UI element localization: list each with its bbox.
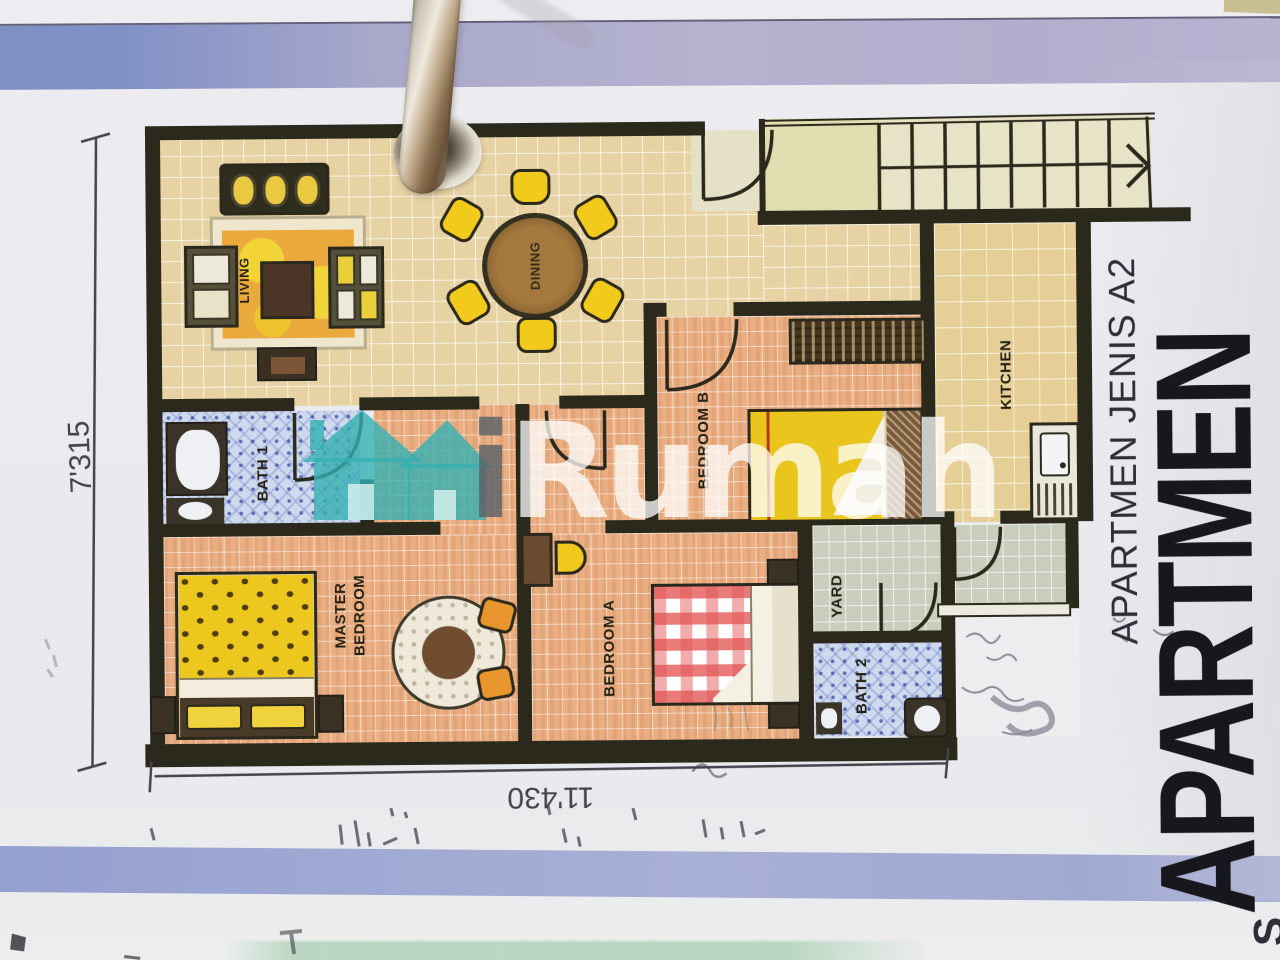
ink-smudges (45, 633, 766, 959)
irumah-watermark: i Rumah (468, 392, 999, 552)
watermark-i: i (468, 392, 508, 552)
yard-label: YARD (828, 575, 845, 618)
irumah-houses-icon (302, 410, 492, 528)
master-label-line2: BEDROOM (350, 575, 370, 656)
entrance-door (703, 130, 773, 200)
yard-door (881, 582, 936, 637)
door-arcs (292, 128, 1001, 643)
corner-letter: S (1245, 917, 1280, 947)
apartment-title: APARTMEN (1126, 330, 1280, 916)
floorplan-card-photo: LIVING DINING KITCHEN BATH 1 BEDROOM B M… (0, 0, 1280, 960)
dining-label: DINING (527, 242, 542, 291)
horizontal-dimension-line (155, 763, 947, 776)
bath2-label: BATH 2 (853, 658, 870, 714)
watermark-rumah: Rumah (508, 392, 999, 552)
ink-blob (10, 933, 26, 951)
pen-scribbles (691, 617, 1174, 777)
bath1-label: BATH 1 (254, 445, 271, 501)
master-label-line1: MASTER (331, 575, 351, 656)
height-dimension: 7'315 (62, 420, 99, 494)
master-bedroom-label: MASTER BEDROOM (331, 575, 370, 656)
width-dimension: 11'430 (507, 779, 594, 814)
living-label: LIVING (237, 257, 252, 303)
staircase (759, 113, 1156, 210)
kitchen-label: KITCHEN (997, 340, 1015, 410)
bedroom-a-label: BEDROOM A (601, 600, 619, 697)
bedroom-b-door (667, 319, 738, 390)
